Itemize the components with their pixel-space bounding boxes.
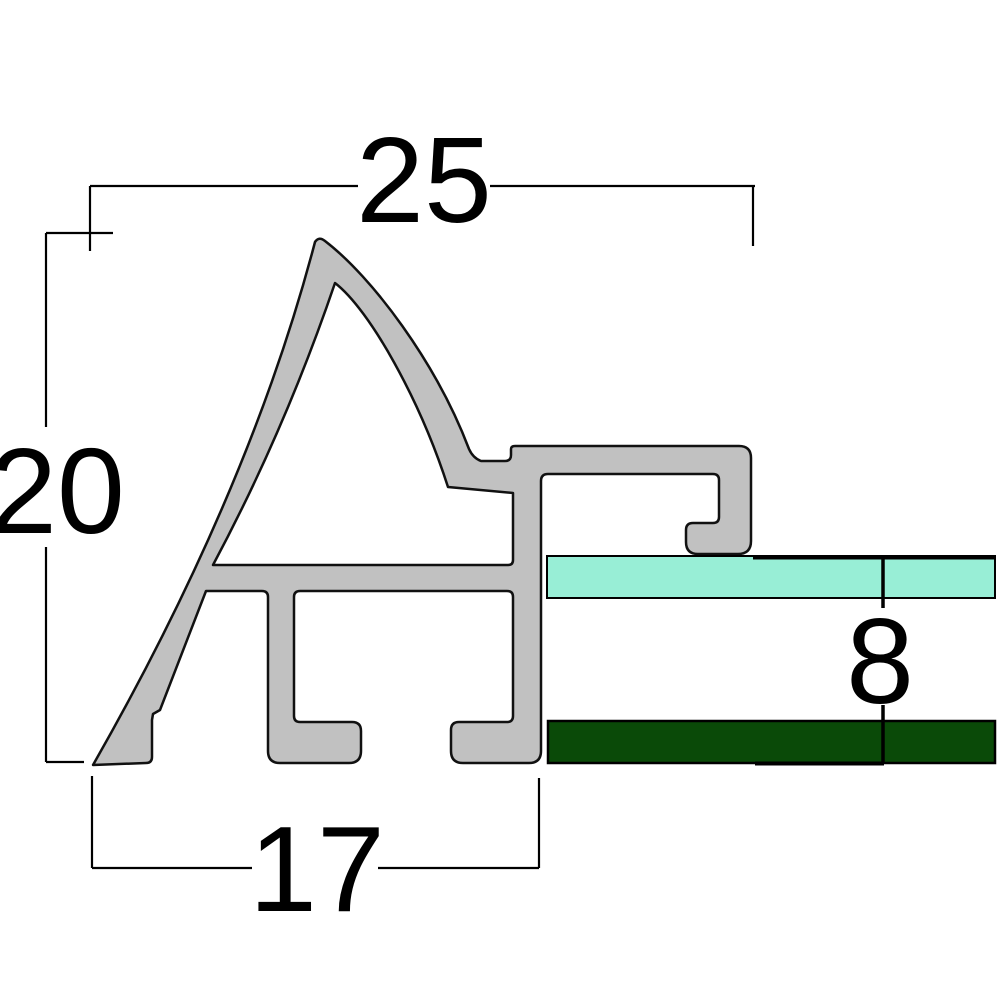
- backing-board: [548, 721, 995, 763]
- frame-profile-shape: [93, 239, 751, 765]
- dimension-value-left: 20: [0, 423, 125, 559]
- dimension-bottom-width: 17: [92, 776, 539, 937]
- dimension-value-top: 25: [356, 112, 492, 248]
- diagram-canvas: 25 20 17 8: [0, 0, 1000, 1000]
- profile-cross-section-diagram: 25 20 17 8: [0, 0, 1000, 1000]
- dimension-top-width: 25: [90, 112, 755, 251]
- dimension-value-bottom: 17: [249, 801, 385, 937]
- dimension-left-height: 20: [0, 233, 125, 762]
- dimension-value-right: 8: [846, 593, 914, 729]
- glass-panel: [547, 556, 995, 598]
